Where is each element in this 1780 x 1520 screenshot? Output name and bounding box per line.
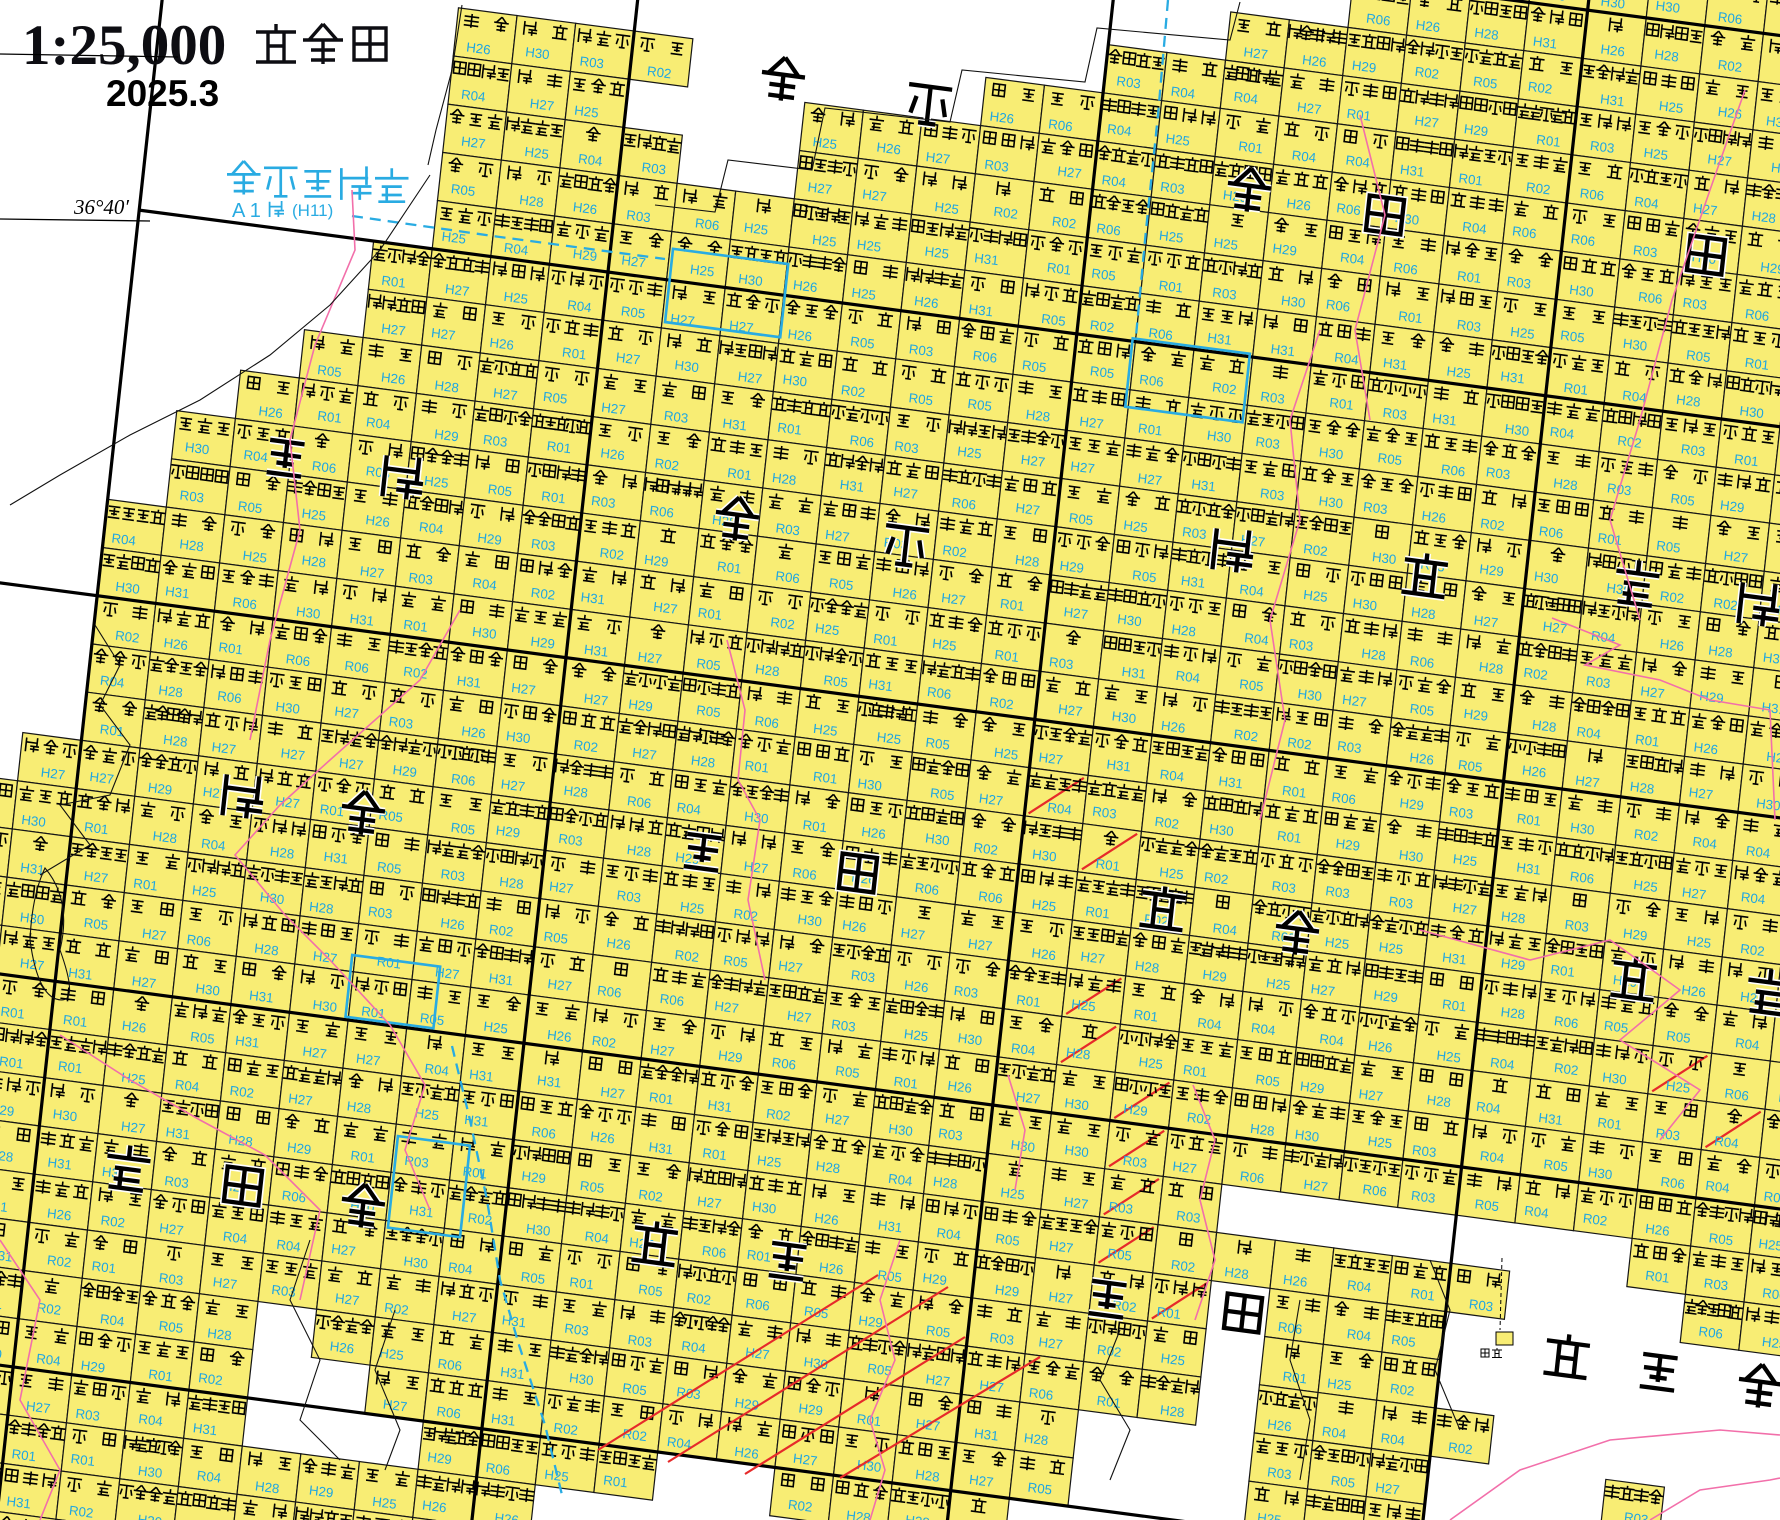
svg-text:R01: R01 — [376, 954, 402, 972]
svg-text:H26: H26 — [606, 935, 632, 953]
svg-text:H30: H30 — [524, 44, 550, 62]
svg-text:H28: H28 — [1654, 47, 1680, 65]
svg-text:2025.3: 2025.3 — [106, 73, 219, 114]
svg-text:R03: R03 — [1048, 654, 1074, 672]
svg-text:H27: H27 — [1048, 1238, 1074, 1256]
svg-text:H27: H27 — [601, 400, 627, 418]
svg-text:R06: R06 — [951, 495, 977, 513]
svg-text:H30: H30 — [471, 624, 497, 642]
svg-text:H26: H26 — [818, 1259, 844, 1277]
svg-text:H25: H25 — [1123, 517, 1149, 535]
svg-text:R05: R05 — [1131, 567, 1157, 585]
svg-text:H27: H27 — [615, 350, 641, 368]
svg-text:R05: R05 — [1377, 450, 1403, 468]
svg-text:H27: H27 — [444, 281, 470, 299]
svg-text:H28: H28 — [1159, 1402, 1185, 1420]
svg-text:R05: R05 — [638, 1281, 664, 1299]
svg-text:R01: R01 — [569, 1274, 595, 1292]
svg-text:R06: R06 — [978, 888, 1004, 906]
svg-text:R02: R02 — [1523, 665, 1549, 683]
svg-text:R03: R03 — [482, 432, 508, 450]
svg-text:R01: R01 — [716, 558, 742, 576]
svg-text:R03: R03 — [1468, 1296, 1494, 1314]
svg-text:R06: R06 — [754, 713, 780, 731]
svg-text:R06: R06 — [1393, 260, 1419, 278]
svg-text:H28: H28 — [1134, 958, 1160, 976]
svg-text:R05: R05 — [1239, 676, 1265, 694]
svg-text:H25: H25 — [1658, 98, 1684, 116]
svg-text:H26: H26 — [989, 109, 1015, 127]
svg-text:R06: R06 — [285, 651, 311, 669]
svg-text:R04: R04 — [1576, 724, 1602, 742]
svg-text:R05: R05 — [543, 929, 569, 947]
svg-text:R02: R02 — [488, 922, 514, 940]
svg-text:H30: H30 — [1622, 336, 1648, 354]
svg-text:H28: H28 — [1751, 208, 1777, 226]
svg-text:H29: H29 — [734, 1395, 760, 1413]
svg-text:H29: H29 — [521, 1168, 547, 1186]
svg-text:H26: H26 — [1600, 41, 1626, 59]
svg-text:H26: H26 — [1645, 1221, 1671, 1239]
svg-text:R04: R04 — [1489, 1055, 1515, 1073]
svg-text:R03: R03 — [1336, 738, 1362, 756]
svg-text:H25: H25 — [814, 620, 840, 638]
svg-text:H28: H28 — [1023, 1430, 1049, 1448]
svg-text:H27: H27 — [381, 321, 407, 339]
svg-text:H30: H30 — [797, 911, 823, 929]
svg-text:R04: R04 — [1170, 84, 1196, 102]
svg-text:H26: H26 — [1681, 982, 1707, 1000]
svg-text:H28: H28 — [1014, 552, 1040, 570]
svg-text:H27: H27 — [824, 527, 850, 545]
svg-text:H27: H27 — [331, 1241, 357, 1259]
svg-text:R05: R05 — [1021, 357, 1047, 375]
svg-text:H27: H27 — [159, 1220, 185, 1238]
svg-text:R06: R06 — [450, 771, 476, 789]
svg-text:R05: R05 — [1666, 1028, 1692, 1046]
svg-text:H27: H27 — [1080, 949, 1106, 967]
svg-text:R04: R04 — [1622, 388, 1648, 406]
svg-text:H25: H25 — [1265, 975, 1291, 993]
svg-text:H30: H30 — [1371, 549, 1397, 567]
svg-text:R02: R02 — [840, 382, 866, 400]
svg-text:R04: R04 — [174, 1077, 200, 1095]
svg-text:H26: H26 — [1415, 17, 1441, 35]
svg-text:R01: R01 — [1238, 138, 1264, 156]
svg-text:R02: R02 — [1717, 57, 1743, 75]
svg-text:R03: R03 — [641, 159, 667, 177]
svg-text:R01: R01 — [317, 408, 343, 426]
svg-text:H30: H30 — [568, 1370, 594, 1388]
svg-text:R03: R03 — [1382, 405, 1408, 423]
svg-text:R01: R01 — [999, 596, 1025, 614]
svg-text:H27: H27 — [287, 1091, 313, 1109]
svg-text:R04: R04 — [1321, 1424, 1347, 1442]
svg-text:H28: H28 — [301, 553, 327, 571]
svg-text:R06: R06 — [436, 1404, 462, 1422]
svg-text:H30: H30 — [1587, 1164, 1613, 1182]
svg-text:R02: R02 — [1233, 726, 1259, 744]
svg-text:H25: H25 — [1665, 1078, 1691, 1096]
svg-text:H30: H30 — [52, 1106, 78, 1124]
svg-text:R06: R06 — [914, 880, 940, 898]
svg-text:H26: H26 — [1367, 1038, 1393, 1056]
svg-text:R06: R06 — [311, 458, 337, 476]
svg-text:R05: R05 — [850, 334, 876, 352]
svg-text:H28: H28 — [1531, 717, 1557, 735]
svg-text:H31: H31 — [1121, 664, 1147, 682]
svg-text:R05: R05 — [696, 702, 722, 720]
svg-text:R03: R03 — [1655, 1125, 1681, 1143]
svg-text:R04: R04 — [1197, 1015, 1223, 1033]
svg-text:H31: H31 — [1399, 162, 1425, 180]
svg-text:R03: R03 — [908, 341, 934, 359]
svg-text:H27: H27 — [141, 926, 167, 944]
svg-text:H28: H28 — [563, 783, 589, 801]
svg-text:R01: R01 — [1085, 903, 1111, 921]
svg-text:H31: H31 — [839, 477, 865, 495]
svg-text:H26: H26 — [461, 723, 487, 741]
svg-text:R04: R04 — [1250, 1020, 1276, 1038]
svg-text:R06: R06 — [1331, 789, 1357, 807]
svg-text:H27: H27 — [1452, 900, 1478, 918]
svg-text:R04: R04 — [1734, 1035, 1760, 1053]
svg-text:H26: H26 — [841, 917, 867, 935]
svg-text:R01: R01 — [1516, 811, 1542, 829]
svg-text:H27: H27 — [600, 1084, 626, 1102]
svg-text:H30: H30 — [1031, 847, 1057, 865]
svg-text:R04: R04 — [1346, 1277, 1372, 1295]
svg-text:R04: R04 — [1159, 767, 1185, 785]
svg-text:R04: R04 — [1524, 1203, 1550, 1221]
svg-text:R03: R03 — [388, 714, 414, 732]
svg-text:R01: R01 — [1095, 856, 1121, 874]
svg-text:H30: H30 — [1111, 708, 1137, 726]
svg-text:R03: R03 — [179, 488, 205, 506]
svg-text:R05: R05 — [1027, 1480, 1053, 1498]
svg-text:H29: H29 — [1123, 1101, 1149, 1119]
svg-text:R05: R05 — [1560, 328, 1586, 346]
svg-text:H27: H27 — [359, 563, 385, 581]
svg-text:R06: R06 — [771, 1055, 797, 1073]
svg-text:R04: R04 — [1475, 1099, 1501, 1117]
svg-text:R04: R04 — [1106, 121, 1132, 139]
svg-text:H31: H31 — [323, 849, 349, 867]
svg-text:R01: R01 — [148, 1367, 174, 1385]
svg-text:H26: H26 — [258, 403, 284, 421]
svg-text:R06: R06 — [1538, 523, 1564, 541]
svg-text:H31: H31 — [1270, 341, 1296, 359]
svg-text:H28: H28 — [771, 470, 797, 488]
svg-text:H29: H29 — [1299, 1079, 1325, 1097]
svg-text:H25: H25 — [301, 506, 327, 524]
svg-text:R04: R04 — [222, 1229, 248, 1247]
svg-text:R02: R02 — [787, 1497, 813, 1515]
svg-text:R06: R06 — [659, 991, 685, 1009]
svg-text:H30: H30 — [195, 981, 221, 999]
svg-text:R03: R03 — [1266, 1464, 1292, 1482]
svg-text:H27: H27 — [40, 765, 66, 783]
svg-text:H26: H26 — [1031, 945, 1057, 963]
svg-text:H27: H27 — [1723, 548, 1749, 566]
svg-text:R03: R03 — [408, 570, 434, 588]
svg-text:H26: H26 — [1286, 196, 1312, 214]
svg-text:R04: R04 — [1239, 582, 1265, 600]
svg-text:R01: R01 — [403, 617, 429, 635]
svg-text:H28: H28 — [1249, 1121, 1275, 1139]
svg-text:R01: R01 — [697, 605, 723, 623]
svg-text:H27: H27 — [696, 1193, 722, 1211]
svg-text:H27: H27 — [1542, 619, 1568, 637]
svg-text:H29: H29 — [147, 780, 173, 798]
svg-text:H31: H31 — [1441, 950, 1467, 968]
svg-text:H25: H25 — [1686, 933, 1712, 951]
svg-text:H30: H30 — [1318, 493, 1344, 511]
svg-text:R01: R01 — [1456, 268, 1482, 286]
svg-text:R04: R04 — [584, 1229, 610, 1247]
svg-text:R03: R03 — [616, 887, 642, 905]
svg-text:R01: R01 — [133, 876, 159, 894]
svg-text:H26: H26 — [913, 293, 939, 311]
svg-text:R04: R04 — [1346, 1326, 1372, 1344]
svg-text:R01: R01 — [541, 488, 567, 506]
svg-text:R01: R01 — [1458, 170, 1484, 188]
svg-text:R01: R01 — [1276, 828, 1302, 846]
svg-text:H31: H31 — [1180, 573, 1206, 591]
svg-text:R05: R05 — [1708, 1230, 1734, 1248]
svg-text:R05: R05 — [317, 362, 343, 380]
svg-text:H30: H30 — [1398, 847, 1424, 865]
svg-text:H27: H27 — [925, 1371, 951, 1389]
svg-text:R03: R03 — [627, 1332, 653, 1350]
svg-text:H27: H27 — [743, 858, 769, 876]
svg-text:1:25,000: 1:25,000 — [22, 14, 226, 77]
svg-text:R02: R02 — [68, 1503, 94, 1520]
svg-text:H25: H25 — [1303, 587, 1329, 605]
svg-text:R06: R06 — [1717, 9, 1743, 27]
svg-text:R05: R05 — [1391, 1332, 1417, 1350]
svg-text:R03: R03 — [530, 536, 556, 554]
svg-text:R04: R04 — [276, 1237, 302, 1255]
svg-text:H27: H27 — [744, 1344, 770, 1362]
svg-text:R04: R04 — [36, 1351, 62, 1369]
svg-text:H28: H28 — [254, 940, 280, 958]
svg-text:H25: H25 — [1378, 939, 1404, 957]
svg-text:H26: H26 — [1421, 508, 1447, 526]
svg-text:H30: H30 — [525, 1221, 551, 1239]
svg-text:H26: H26 — [365, 512, 391, 530]
svg-text:R01: R01 — [1182, 1062, 1208, 1080]
svg-text:H27: H27 — [1296, 99, 1322, 117]
svg-text:H27: H27 — [334, 1290, 360, 1308]
svg-text:R01: R01 — [1281, 783, 1307, 801]
svg-text:R02: R02 — [1414, 64, 1440, 82]
svg-text:R04: R04 — [200, 836, 226, 854]
svg-text:H28: H28 — [207, 1325, 233, 1343]
svg-text:H27: H27 — [1048, 1289, 1074, 1307]
svg-text:H26: H26 — [546, 1027, 572, 1045]
svg-text:R06: R06 — [775, 568, 801, 586]
svg-text:R04: R04 — [1010, 1040, 1036, 1058]
svg-text:H28: H28 — [932, 1174, 958, 1192]
svg-text:R02: R02 — [1303, 541, 1329, 559]
svg-text:H28: H28 — [1410, 604, 1436, 622]
svg-text:H27: H27 — [89, 769, 115, 787]
svg-text:R03: R03 — [1271, 878, 1297, 896]
svg-text:R05: R05 — [1670, 491, 1696, 509]
svg-text:H31: H31 — [464, 1112, 490, 1130]
svg-text:H27: H27 — [451, 1308, 477, 1326]
svg-text:R02: R02 — [993, 204, 1019, 222]
svg-text:R06: R06 — [1579, 185, 1605, 203]
svg-text:R01: R01 — [1550, 962, 1576, 980]
svg-text:H26: H26 — [1521, 762, 1547, 780]
svg-text:R02: R02 — [638, 1187, 664, 1205]
svg-text:R03: R03 — [984, 157, 1010, 175]
svg-text:R05: R05 — [450, 181, 476, 199]
svg-text:R04: R04 — [1705, 1178, 1731, 1196]
svg-text:R05: R05 — [1543, 1156, 1569, 1174]
svg-text:R04: R04 — [1462, 219, 1488, 237]
svg-text:R02: R02 — [989, 694, 1015, 712]
svg-text:H25: H25 — [1000, 1185, 1026, 1203]
svg-text:H30: H30 — [1209, 821, 1235, 839]
svg-text:R01: R01 — [83, 819, 109, 837]
svg-text:H27: H27 — [1038, 1334, 1064, 1352]
svg-text:H31: H31 — [648, 1139, 674, 1157]
svg-text:H28: H28 — [162, 732, 188, 750]
svg-text:H29: H29 — [0, 1101, 15, 1119]
svg-text:H27: H27 — [19, 955, 45, 973]
svg-text:R02: R02 — [1089, 317, 1115, 335]
svg-text:H25: H25 — [689, 262, 715, 280]
svg-text:H29: H29 — [628, 696, 654, 714]
svg-text:H29: H29 — [717, 1048, 743, 1066]
svg-text:H27: H27 — [131, 973, 157, 991]
svg-text:R06: R06 — [186, 932, 212, 950]
svg-text:H30: H30 — [1064, 1142, 1090, 1160]
svg-text:R01: R01 — [1733, 451, 1759, 469]
svg-text:R05: R05 — [376, 859, 402, 877]
svg-text:R06: R06 — [596, 983, 622, 1001]
svg-text:R06: R06 — [1660, 1174, 1686, 1192]
svg-text:R01: R01 — [99, 721, 125, 739]
svg-text:R04: R04 — [196, 1468, 222, 1486]
svg-text:H26: H26 — [421, 1497, 447, 1515]
svg-text:R02: R02 — [1633, 826, 1659, 844]
svg-text:H27: H27 — [212, 1274, 238, 1292]
svg-text:R01: R01 — [603, 1472, 629, 1490]
svg-text:R06: R06 — [1096, 220, 1122, 238]
svg-text:R03: R03 — [579, 53, 605, 71]
svg-text:H27: H27 — [967, 936, 993, 954]
svg-text:H25: H25 — [1446, 363, 1472, 381]
svg-text:H25: H25 — [1160, 1350, 1186, 1368]
svg-text:H29: H29 — [308, 1482, 334, 1500]
svg-text:R06: R06 — [1724, 1086, 1750, 1104]
svg-text:H31: H31 — [47, 1155, 73, 1173]
svg-text:H25: H25 — [1213, 235, 1239, 253]
svg-text:H27: H27 — [83, 868, 109, 886]
svg-text:H28: H28 — [179, 536, 205, 554]
svg-text:H26: H26 — [600, 445, 626, 463]
svg-text:H27: H27 — [1015, 500, 1041, 518]
svg-text:R06: R06 — [1553, 1013, 1579, 1031]
svg-text:R01: R01 — [1744, 355, 1770, 373]
svg-text:R04: R04 — [887, 1171, 913, 1189]
svg-text:R03: R03 — [1703, 1275, 1729, 1293]
svg-text:H25: H25 — [423, 473, 449, 491]
svg-text:H28: H28 — [346, 1098, 372, 1116]
svg-text:R06: R06 — [1698, 1324, 1724, 1342]
svg-text:R02: R02 — [1211, 379, 1237, 397]
svg-text:R02: R02 — [646, 63, 672, 81]
svg-text:H25: H25 — [957, 443, 983, 461]
svg-text:H28: H28 — [815, 1158, 841, 1176]
svg-text:R01: R01 — [1441, 996, 1467, 1014]
svg-text:R06: R06 — [1028, 1385, 1054, 1403]
svg-text:H30: H30 — [295, 604, 321, 622]
svg-text:H30: H30 — [184, 439, 210, 457]
svg-text:H31: H31 — [973, 1426, 999, 1444]
svg-text:R01: R01 — [0, 1004, 26, 1022]
svg-text:H27: H27 — [824, 1111, 850, 1129]
svg-text:R02: R02 — [46, 1252, 72, 1270]
svg-text:R06: R06 — [1048, 116, 1074, 134]
svg-text:R03: R03 — [938, 1125, 964, 1143]
svg-text:H28: H28 — [1025, 407, 1051, 425]
svg-text:R06: R06 — [926, 684, 952, 702]
svg-text:R04: R04 — [1212, 920, 1238, 938]
svg-text:R02: R02 — [622, 1426, 648, 1444]
svg-text:H29: H29 — [858, 1313, 884, 1331]
svg-text:R03: R03 — [1564, 917, 1590, 935]
svg-text:R01: R01 — [1597, 1115, 1623, 1133]
svg-text:H26: H26 — [734, 1444, 760, 1462]
svg-text:R03: R03 — [1632, 242, 1658, 260]
svg-text:R01: R01 — [70, 1451, 96, 1469]
svg-text:H27: H27 — [653, 599, 679, 617]
svg-text:R03: R03 — [1122, 1153, 1148, 1171]
svg-text:R06: R06 — [1440, 461, 1466, 479]
svg-text:H29: H29 — [1351, 58, 1377, 76]
svg-text:H25: H25 — [574, 103, 600, 121]
svg-text:R06: R06 — [694, 215, 720, 233]
svg-text:R02: R02 — [1287, 735, 1313, 753]
svg-text:H25: H25 — [503, 289, 529, 307]
svg-text:H27: H27 — [548, 879, 574, 897]
svg-text:R06: R06 — [531, 1124, 557, 1142]
svg-text:H27: H27 — [302, 1044, 328, 1062]
svg-text:R02: R02 — [1525, 179, 1551, 197]
svg-text:R04: R04 — [577, 151, 603, 169]
svg-text:H25: H25 — [932, 636, 958, 654]
svg-text:R03: R03 — [1456, 317, 1482, 335]
svg-text:R02: R02 — [553, 1420, 579, 1438]
svg-text:H27: H27 — [714, 998, 740, 1016]
svg-text:H26: H26 — [46, 1205, 72, 1223]
svg-text:R03: R03 — [1108, 1199, 1134, 1217]
svg-text:H31: H31 — [1382, 355, 1408, 373]
svg-text:H29: H29 — [1479, 561, 1505, 579]
svg-text:R01: R01 — [1282, 1369, 1308, 1387]
svg-text:H28: H28 — [434, 378, 460, 396]
svg-text:R02: R02 — [765, 1106, 791, 1124]
svg-text:R05: R05 — [1472, 74, 1498, 92]
svg-text:H25: H25 — [121, 1070, 147, 1088]
svg-text:H29: H29 — [1463, 121, 1489, 139]
svg-text:H27: H27 — [1063, 604, 1089, 622]
